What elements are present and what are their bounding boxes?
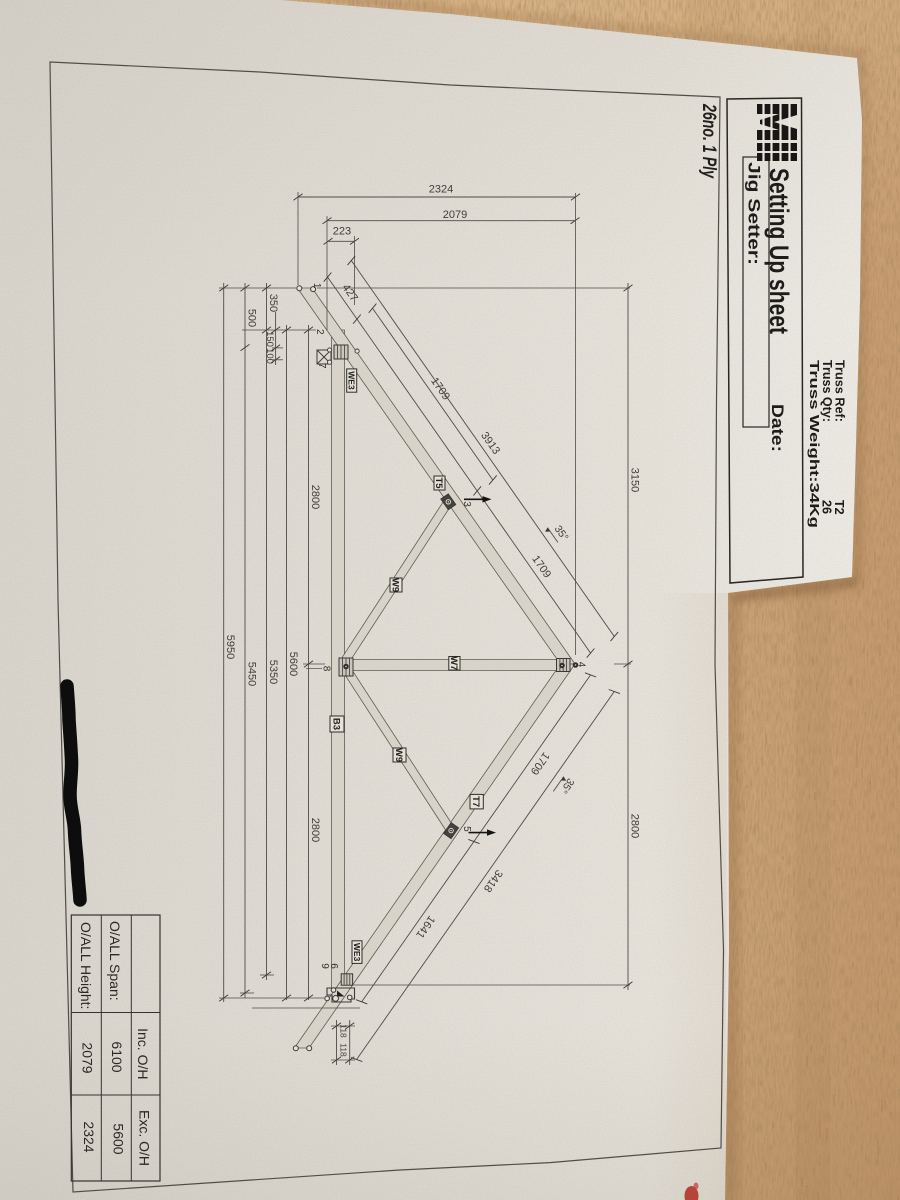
svg-text:Inc. O/H: Inc. O/H (135, 1028, 151, 1079)
svg-text:T5: T5 (433, 477, 444, 489)
svg-text:9: 9 (319, 963, 330, 969)
svg-text:WE3: WE3 (347, 371, 357, 390)
svg-text:Truss Qty:: Truss Qty: (820, 360, 834, 422)
svg-text:223: 223 (333, 226, 351, 238)
svg-text:Date:: Date: (768, 404, 787, 452)
svg-text:3: 3 (461, 501, 472, 507)
svg-text:2800: 2800 (309, 485, 321, 509)
svg-text:2079: 2079 (80, 1042, 96, 1073)
svg-text:2800: 2800 (629, 814, 641, 838)
svg-text:Truss Weight:34Kg: Truss Weight:34Kg (807, 360, 821, 528)
svg-text:W9: W9 (390, 578, 401, 592)
svg-text:1: 1 (311, 283, 322, 289)
svg-text:5450: 5450 (246, 662, 258, 686)
svg-text:Jig Setter:: Jig Setter: (745, 162, 764, 265)
svg-text:B3: B3 (331, 718, 342, 730)
svg-text:WE3: WE3 (352, 943, 362, 962)
svg-text:2324: 2324 (81, 1121, 97, 1152)
svg-text:T7: T7 (470, 796, 481, 807)
svg-text:150: 150 (264, 331, 275, 347)
svg-text:2800: 2800 (309, 818, 321, 842)
svg-text:5600: 5600 (111, 1123, 127, 1154)
svg-text:5600: 5600 (287, 652, 299, 676)
svg-text:2079: 2079 (443, 209, 467, 221)
svg-text:118: 118 (339, 1043, 349, 1057)
svg-text:W9: W9 (393, 748, 404, 762)
svg-text:7: 7 (316, 363, 327, 369)
svg-text:Setting Up sheet: Setting Up sheet (764, 168, 794, 334)
svg-text:2: 2 (314, 329, 325, 335)
svg-text:3150: 3150 (629, 468, 641, 492)
svg-text:2324: 2324 (429, 183, 453, 195)
svg-text:350: 350 (267, 294, 279, 312)
svg-text:6100: 6100 (109, 1041, 125, 1072)
svg-text:Exc. O/H: Exc. O/H (137, 1110, 153, 1166)
svg-text:O/ALL Span:: O/ALL Span: (107, 921, 123, 1001)
svg-text:5: 5 (461, 826, 472, 832)
svg-text:4: 4 (576, 662, 587, 668)
svg-text:O/ALL Height:: O/ALL Height: (78, 922, 94, 1009)
svg-text:5950: 5950 (224, 635, 236, 659)
svg-text:W7: W7 (448, 656, 459, 670)
svg-text:26no. 1 Ply: 26no. 1 Ply (698, 103, 719, 179)
svg-text:500: 500 (246, 309, 258, 327)
svg-text:8: 8 (321, 666, 332, 672)
svg-text:5350: 5350 (267, 660, 279, 684)
svg-text:100: 100 (264, 348, 275, 364)
